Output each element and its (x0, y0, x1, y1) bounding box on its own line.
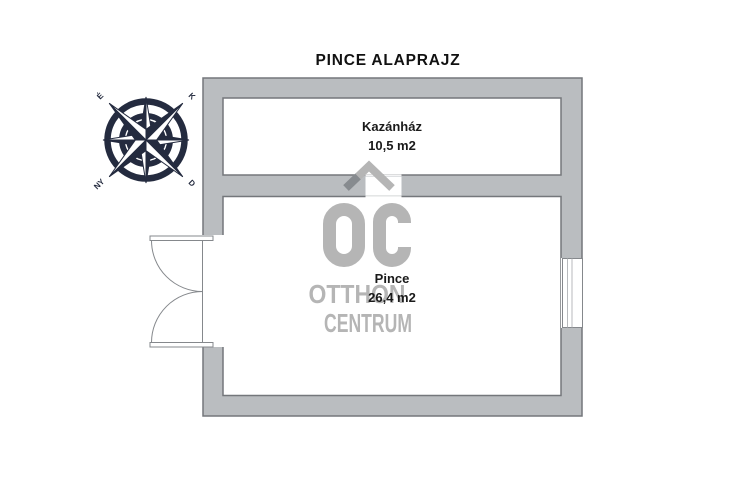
logo-letter-c-gap (398, 223, 413, 247)
door-opening (201, 235, 225, 347)
room-kazanhaz-area: 10,5 m2 (368, 138, 416, 153)
door-leaf-top (150, 236, 213, 241)
floor-plan-canvas: PINCE ALAPRAJZ É K NY D (0, 0, 735, 500)
window (561, 258, 585, 328)
room-pince-area: 26,4 m2 (368, 290, 416, 305)
room-pince-name: Pince (375, 271, 410, 286)
door-leaf-bottom (150, 343, 213, 348)
room-kazanhaz (223, 98, 561, 175)
window-frame (563, 259, 583, 328)
page-title: PINCE ALAPRAJZ (316, 52, 461, 69)
room-kazanhaz-name: Kazánház (362, 119, 422, 134)
watermark-line2: CENTRUM (324, 308, 412, 338)
floorplan-page: PINCE ALAPRAJZ É K NY D (0, 0, 735, 500)
